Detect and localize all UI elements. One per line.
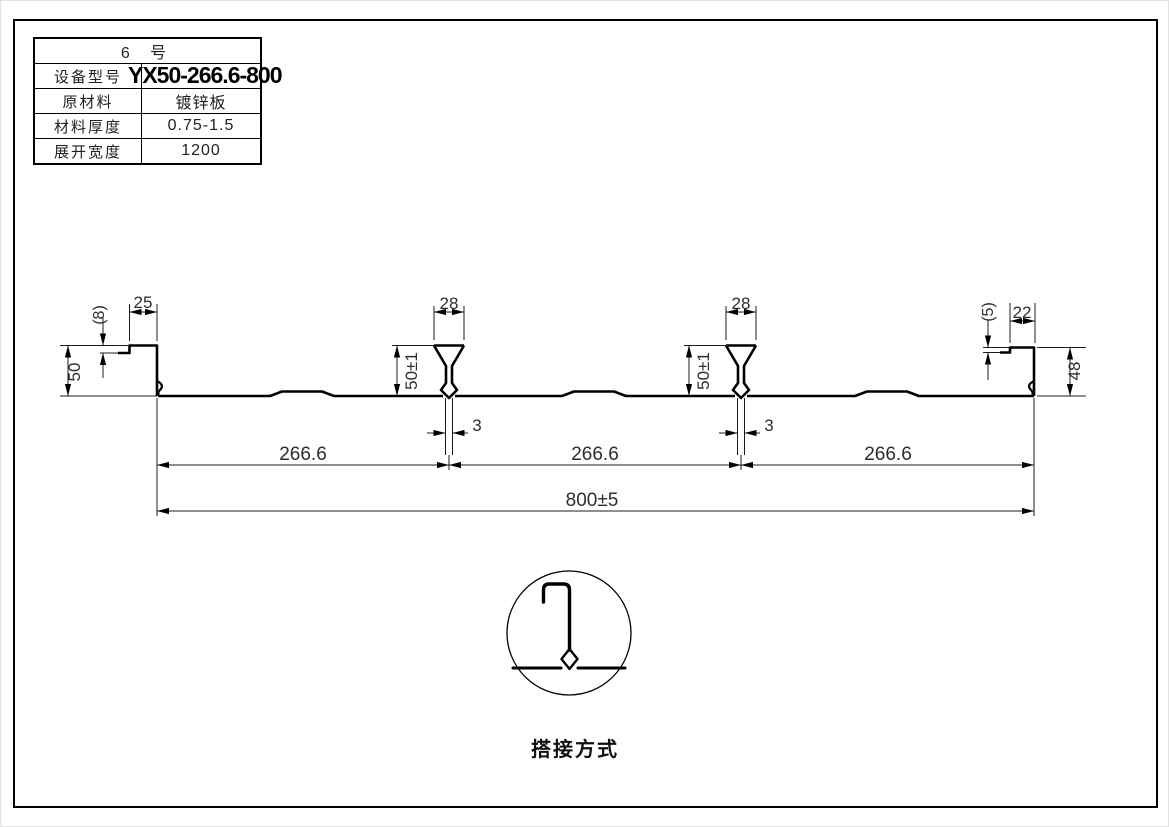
dim-rib2-top-label: 28 bbox=[732, 294, 751, 313]
model-number: YX50-266.6-800 bbox=[128, 62, 282, 89]
dim-left-top-label: 25 bbox=[134, 293, 153, 312]
dim-rib2-gap-label: 3 bbox=[764, 416, 773, 435]
dim-rib1-top-label: 28 bbox=[440, 294, 459, 313]
dim-right-height-label: 48 bbox=[1065, 362, 1084, 381]
dim-left-lip-label: (8) bbox=[91, 305, 108, 325]
row-value: 1200 bbox=[142, 139, 260, 163]
dimension-annotations bbox=[60, 303, 1086, 516]
table-row: 设备型号 YX50-266.6-800 bbox=[35, 63, 260, 88]
profile-outline bbox=[118, 346, 1034, 399]
row-label: 设备型号 bbox=[35, 64, 142, 88]
row-label: 原材料 bbox=[35, 89, 142, 113]
sheet-number: 6 号 bbox=[35, 39, 260, 63]
table-row: 材料厚度 0.75-1.5 bbox=[35, 113, 260, 138]
title-block-table: 6 号 设备型号 YX50-266.6-800 原材料 镀锌板 材料厚度 0.7… bbox=[33, 37, 262, 165]
dim-rib1-height-label: 50±1 bbox=[402, 352, 421, 390]
dim-right-top-label: 22 bbox=[1013, 303, 1032, 322]
dim-overall-label: 800±5 bbox=[566, 490, 619, 511]
detail-caption: 搭接方式 bbox=[495, 733, 655, 762]
dim-right-lip-label: (5) bbox=[980, 302, 997, 322]
table-row: 展开宽度 1200 bbox=[35, 138, 260, 163]
row-label: 展开宽度 bbox=[35, 139, 142, 163]
row-label: 材料厚度 bbox=[35, 114, 142, 138]
dim-rib1-gap-label: 3 bbox=[472, 416, 481, 435]
dim-span1-label: 266.6 bbox=[279, 444, 327, 465]
lap-joint-detail bbox=[507, 571, 631, 695]
row-value: 0.75-1.5 bbox=[142, 114, 260, 138]
engineering-drawing-page: 6 号 设备型号 YX50-266.6-800 原材料 镀锌板 材料厚度 0.7… bbox=[0, 0, 1169, 827]
table-row: 原材料 镀锌板 bbox=[35, 88, 260, 113]
dimension-labels: (8) 25 50 28 50±1 3 28 50±1 3 (5) 22 48 … bbox=[65, 293, 1084, 511]
row-value: 镀锌板 bbox=[142, 89, 260, 113]
dim-span3-label: 266.6 bbox=[864, 444, 912, 465]
dim-left-height-label: 50 bbox=[65, 363, 84, 382]
table-row: 6 号 bbox=[35, 39, 260, 63]
dim-rib2-height-label: 50±1 bbox=[694, 352, 713, 390]
dim-span2-label: 266.6 bbox=[571, 444, 619, 465]
row-value: YX50-266.6-800 bbox=[142, 64, 260, 88]
